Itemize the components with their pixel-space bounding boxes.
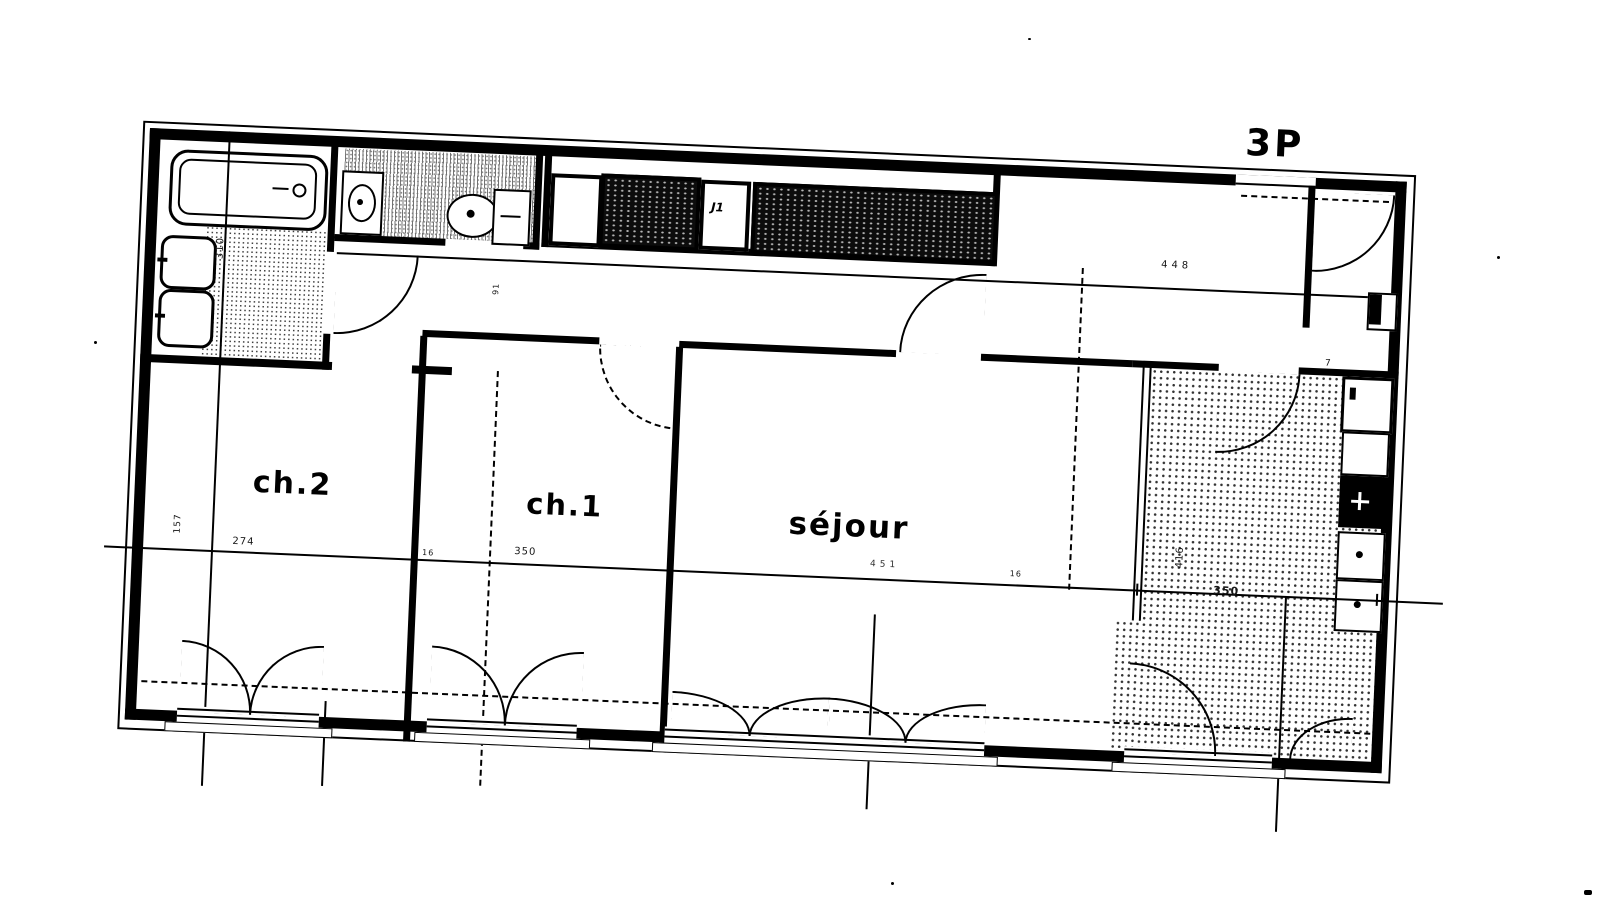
kitchen-sink-unit [1338,475,1384,529]
scan-speck-5 [1584,890,1592,895]
cooktop-1 [1336,531,1386,581]
cooktop-1-burner [1356,551,1363,558]
dim-ch2-side: 157 [173,513,184,534]
duct-shaft [1366,292,1398,331]
dim-wall-b: 16 [1010,569,1023,579]
dim-shaft: 7 [1325,358,1332,368]
scan-speck-1 [94,341,97,344]
kitchen-sink-cross-v [1358,492,1362,510]
scan-speck-3 [1497,256,1500,259]
closet-j1-label: J1 [711,200,724,215]
room-label-sejour: séjour [788,506,910,547]
toilet-tank [491,189,531,247]
dim-kitchen-depth: 416 [1174,546,1186,569]
scan-speck-4 [891,882,894,885]
duct-shaft-fill [1369,294,1382,324]
fridge-mark [1349,388,1356,400]
toilet-tank-line [501,215,521,218]
wardrobe-1 [598,173,701,251]
hand-basin-1 [159,235,217,291]
cooktop-2 [1334,579,1384,633]
cooktop-2-burner [1354,601,1361,608]
scanned-floor-plan-page: { "plan": { "type_label": "3P", "rooms":… [0,0,1602,910]
dim-sejour-width: 451 [870,559,900,570]
closet-empty [548,173,603,247]
apartment-floor-plan: J1 448 7 91 [124,128,1407,793]
kitchen-cabinet-upper [1340,431,1390,477]
dim-hall-length: 448 [1161,259,1193,271]
dim-wall-a: 16 [422,548,435,558]
hand-basin-2 [157,289,215,349]
dim-kitchen-width: 350 [1213,584,1240,598]
closet-j1-box: J1 [698,180,751,252]
room-label-ch1: ch.1 [526,486,604,523]
dim-ch2-width: 274 [232,536,255,548]
dim-wc-door: 91 [491,283,501,296]
bathtub [168,149,329,232]
kitchen-cabinet-fridge [1340,376,1394,434]
toilet-drain [466,210,474,218]
dim-ch1-width: 350 [514,546,537,558]
washbasin [340,170,385,236]
basin2-tap [155,313,165,317]
basin1-tap [157,257,167,261]
scan-speck-2 [1028,38,1031,40]
plan-type-label: 3P [1244,121,1305,166]
room-label-ch2: ch.2 [252,465,333,503]
wardrobe-2 [750,182,999,264]
